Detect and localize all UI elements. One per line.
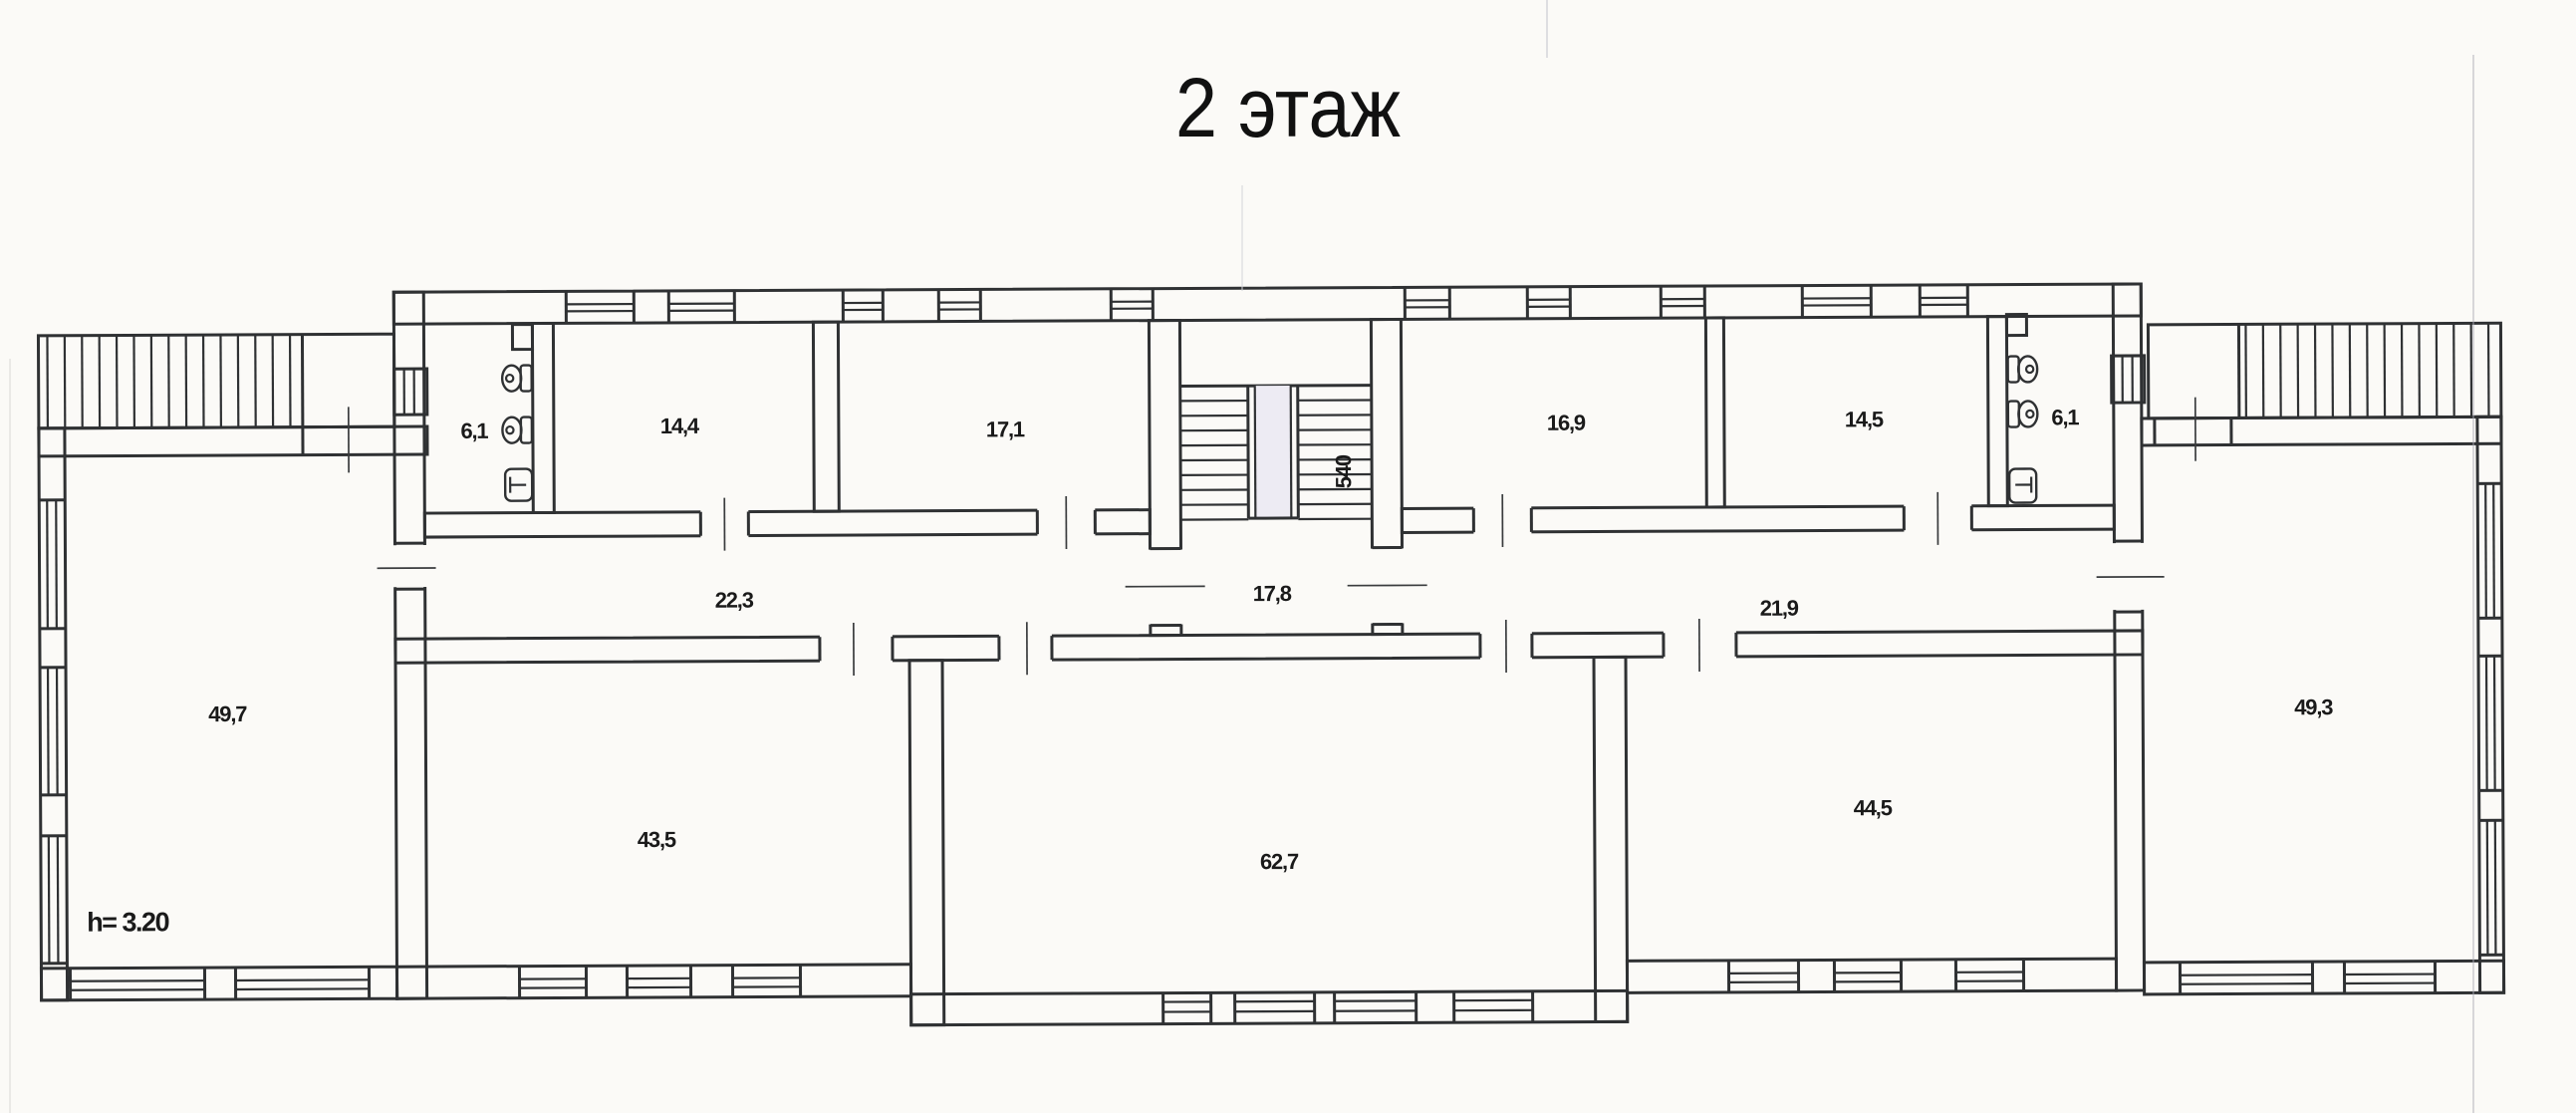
svg-text:2 этаж: 2 этаж <box>1175 61 1401 154</box>
svg-text:14,4: 14,4 <box>660 414 700 438</box>
svg-text:43,5: 43,5 <box>638 827 676 852</box>
svg-text:h= 3.20: h= 3.20 <box>87 907 168 937</box>
svg-text:14,5: 14,5 <box>1845 407 1884 431</box>
svg-text:21,9: 21,9 <box>1760 596 1799 621</box>
svg-text:17,8: 17,8 <box>1253 581 1292 606</box>
svg-text:17,1: 17,1 <box>986 417 1025 441</box>
svg-text:62,7: 62,7 <box>1260 849 1299 874</box>
svg-text:44,5: 44,5 <box>1854 795 1893 820</box>
svg-text:22,3: 22,3 <box>715 588 754 613</box>
svg-text:6,1: 6,1 <box>2051 405 2079 429</box>
svg-text:49,3: 49,3 <box>2294 695 2333 719</box>
svg-text:49,7: 49,7 <box>208 701 247 726</box>
svg-text:6,1: 6,1 <box>460 418 488 443</box>
svg-text:540: 540 <box>1331 454 1356 488</box>
svg-text:16,9: 16,9 <box>1547 411 1586 435</box>
